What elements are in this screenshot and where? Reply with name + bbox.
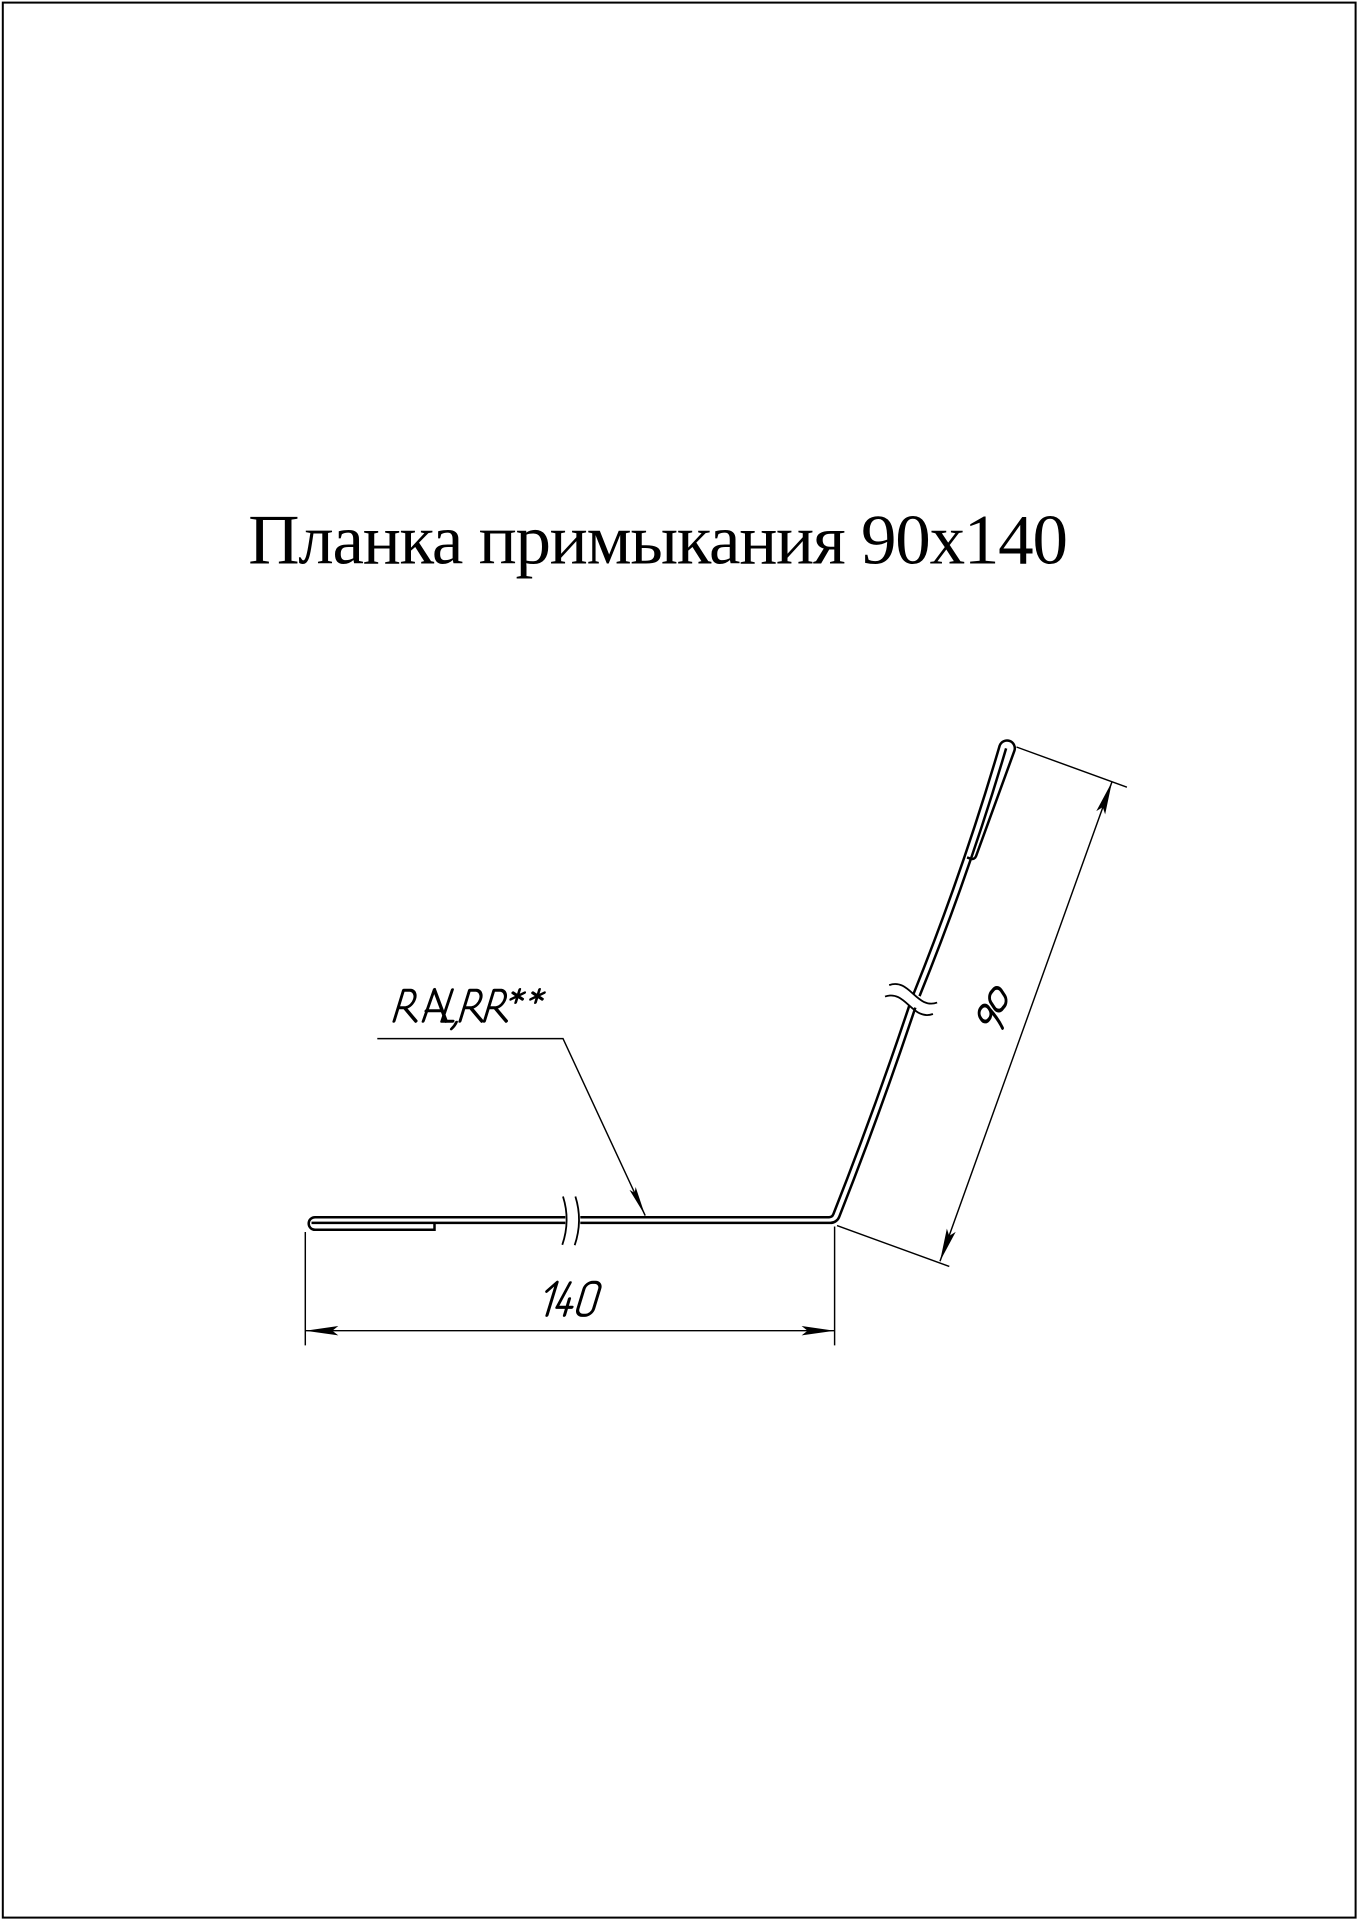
svg-text:Планка примыкания 90х140: Планка примыкания 90х140 xyxy=(248,501,1067,579)
